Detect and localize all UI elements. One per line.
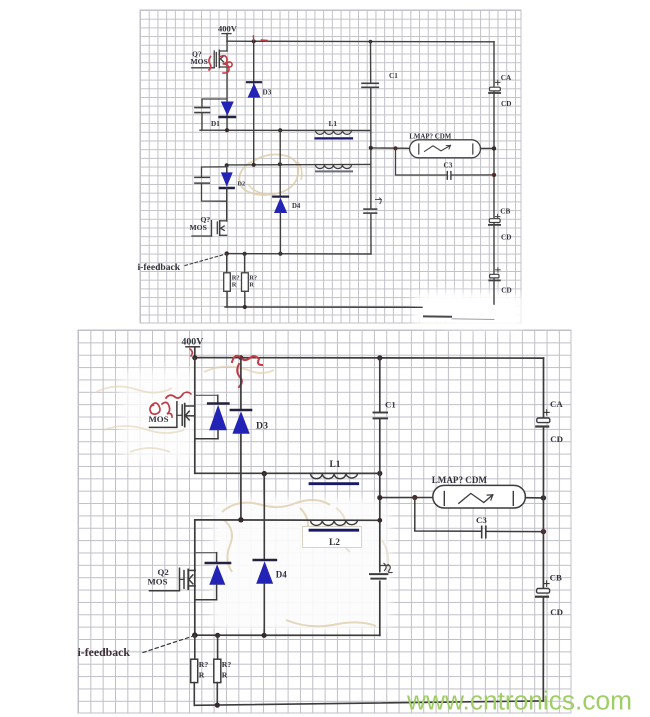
svg-text:L2: L2 — [329, 538, 340, 548]
svg-text:D2: D2 — [238, 181, 246, 188]
svg-text:CA: CA — [550, 399, 563, 409]
svg-text:C1: C1 — [389, 72, 398, 80]
svg-text:MOS: MOS — [190, 223, 207, 232]
svg-text:LMAP? CDM: LMAP? CDM — [409, 133, 451, 140]
svg-text:R?: R? — [199, 660, 209, 669]
svg-text:MOS: MOS — [191, 57, 208, 66]
svg-text:R: R — [232, 282, 237, 289]
svg-text:MOS: MOS — [149, 414, 169, 424]
svg-text:L1: L1 — [330, 460, 341, 470]
svg-text:CA: CA — [501, 74, 512, 82]
svg-text:R: R — [249, 282, 254, 289]
svg-text:D3: D3 — [256, 421, 268, 432]
svg-text:CB: CB — [500, 208, 510, 216]
svg-text:D1: D1 — [211, 120, 220, 128]
svg-text:R?: R? — [249, 275, 257, 282]
svg-text:C1: C1 — [385, 400, 396, 410]
svg-text:CD: CD — [501, 100, 511, 108]
svg-text:L1: L1 — [329, 119, 338, 128]
svg-text:R: R — [199, 671, 205, 680]
svg-text:CB: CB — [550, 572, 562, 582]
svg-text:CD: CD — [501, 287, 511, 295]
svg-text:CD: CD — [550, 434, 563, 444]
svg-text:Q2: Q2 — [158, 567, 170, 577]
svg-text:C3: C3 — [444, 162, 453, 170]
svg-text:i-feedback: i-feedback — [138, 262, 181, 273]
svg-text:MOS: MOS — [148, 577, 168, 587]
svg-text:D4: D4 — [276, 570, 287, 580]
svg-text:CD: CD — [501, 234, 511, 242]
svg-text:CD: CD — [550, 607, 563, 617]
svg-text:C3: C3 — [476, 515, 487, 525]
svg-text:R?: R? — [222, 660, 232, 669]
svg-text:400V: 400V — [182, 337, 204, 348]
svg-text:www.cntronics.com: www.cntronics.com — [406, 686, 632, 716]
svg-text:LMAP? CDM: LMAP? CDM — [432, 475, 488, 485]
svg-text:R: R — [222, 671, 228, 680]
svg-text:D3: D3 — [263, 89, 272, 97]
svg-text:D4: D4 — [292, 203, 301, 210]
svg-text:400V: 400V — [218, 24, 238, 34]
svg-text:i-feedback: i-feedback — [78, 645, 131, 659]
svg-text:R?: R? — [232, 275, 240, 282]
